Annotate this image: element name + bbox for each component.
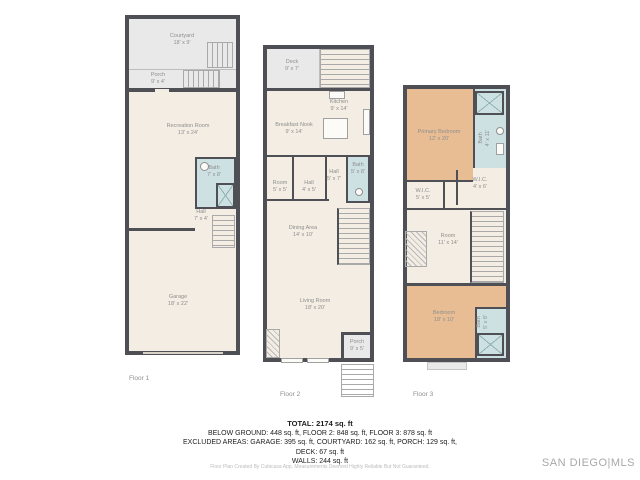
room-label-bath-f1: Bath 7' x 8' [207, 165, 221, 179]
fireplace-icon [266, 329, 280, 358]
window [281, 358, 303, 363]
excluded-area-text: EXCLUDED AREAS: GARAGE: 395 sq. ft, COUR… [0, 438, 640, 447]
shower-icon [216, 183, 235, 208]
room-label-porch-f2: Porch 9' x 5' [350, 339, 364, 353]
room-name: Deck [285, 59, 299, 66]
floor2-label: Floor 2 [280, 391, 300, 398]
floor2-exterior-walls [263, 45, 374, 362]
room-label-hall-f1: Hall 7' x 4' [194, 209, 208, 223]
floor2-exterior-stairs [341, 364, 374, 397]
room-dims: 7' x 4' [194, 216, 208, 223]
room-dims: 4' x 5' [302, 187, 316, 194]
room-dims: 5' x 7' [327, 176, 341, 183]
floor1-garage-wall [129, 228, 195, 231]
room-name: Garage [168, 294, 188, 301]
room-label-recreation-room: Recreation Room 13' x 24' [167, 123, 210, 137]
floorplan-sheet: Courtyard 18' x 9' Porch 9' x 4' Recreat… [0, 0, 640, 480]
floor2-stairs [337, 208, 370, 265]
floor1-courtyard-stairs [207, 42, 233, 68]
sink-icon [355, 188, 363, 196]
room-dims: 18' x 20' [300, 305, 331, 312]
room-name: Hall [302, 180, 316, 187]
floor3-interior-wall-2 [443, 182, 445, 210]
room-label-dining-area: Dining Area 14' x 10' [289, 225, 317, 239]
room-label-porch-f1: Porch 9' x 4' [151, 72, 165, 86]
floor2-plan: Deck 9' x 7' Kitchen 9' x 14' Breakfast … [263, 45, 378, 415]
room-name: Kitchen [330, 99, 348, 106]
room-dims: 11' x 14' [438, 240, 458, 247]
floor3-interior-wall-1 [407, 180, 473, 182]
room-label-kitchen: Kitchen 9' x 14' [330, 99, 348, 113]
room-label-room-f3: Room 11' x 14' [438, 233, 458, 247]
vanity-icon [496, 143, 504, 155]
room-name: Recreation Room [167, 123, 210, 130]
floor3-label: Floor 3 [413, 391, 433, 398]
window [307, 358, 329, 363]
room-dims: 9' x 7' [285, 66, 299, 73]
room-name: Room [273, 180, 288, 187]
room-dims: 13' x 24' [167, 130, 210, 137]
room-name: W.I.C. [416, 188, 431, 195]
room-name: Hall [194, 209, 208, 216]
room-dims: 4' x 11' [485, 130, 492, 147]
floor3-stairs [470, 211, 504, 283]
room-dims: 7' x 8' [207, 172, 221, 179]
floor1-stairs [212, 215, 235, 248]
room-label-wic-left: W.I.C. 5' x 5' [416, 188, 431, 202]
floor3-entry-stoop [427, 362, 467, 370]
room-name: W.I.C. [473, 177, 488, 184]
shower-icon [475, 91, 504, 115]
room-dims: 9' x 14' [275, 129, 313, 136]
room-label-bath-f2: Bath 5' x 8' [351, 162, 365, 176]
floor3-interior-wall-4 [407, 208, 506, 210]
room-name: Breakfast Nook [275, 122, 313, 129]
floor2-top-stairs [320, 49, 370, 88]
room-label-garage: Garage 18' x 22' [168, 294, 188, 308]
room-dims: 12' x 20' [418, 136, 461, 143]
room-name: Bath [351, 162, 365, 169]
room-label-hall-f2: Hall 4' x 5' [302, 180, 316, 194]
room-name: Bath [476, 315, 483, 329]
room-label-wic-right: W.I.C. 4' x 6' [473, 177, 488, 191]
room-dims: 9' x 4' [151, 79, 165, 86]
room-label-breakfast-nook: Breakfast Nook 9' x 14' [275, 122, 313, 136]
total-area-text: TOTAL: 2174 sq. ft [0, 419, 640, 429]
floors-area-text: BELOW GROUND: 448 sq. ft, FLOOR 2: 848 s… [0, 429, 640, 438]
room-label-primary-bedroom: Primary Bedroom 12' x 20' [418, 129, 461, 143]
sandiego-mls-watermark: SAN DIEGO|MLS [542, 457, 635, 469]
room-name: Porch [350, 339, 364, 346]
room-dims: 18' x 10' [433, 317, 455, 324]
room-dims: 5' x 5' [273, 187, 288, 194]
closet [405, 231, 427, 267]
room-name: Bath [207, 165, 221, 172]
room-name: Bedroom [433, 310, 455, 317]
floor1-label: Floor 1 [129, 375, 149, 382]
room-dims: 9' x 14' [330, 106, 348, 113]
room-dims: 18' x 9' [170, 40, 194, 47]
room-name: Primary Bedroom [418, 129, 461, 136]
room-label-room-f2: Room 5' x 5' [273, 180, 288, 194]
room-label-bath-top-f3: Bath 4' x 11' [478, 130, 492, 147]
room-dims: 18' x 22' [168, 301, 188, 308]
floor1-porch-stairs [183, 70, 220, 88]
room-dims: 14' x 10' [289, 232, 317, 239]
floor1-garage-door [143, 352, 223, 354]
room-dims: 5' x 8' [351, 169, 365, 176]
room-name: Bath [478, 130, 485, 147]
floor2-rear-wall [263, 88, 374, 91]
room-dims: 9' x 5' [350, 346, 364, 353]
floor2-interior-wall-bottom [267, 199, 329, 201]
counter [363, 109, 370, 135]
room-name: Hall [327, 169, 341, 176]
room-name: Room [438, 233, 458, 240]
room-dims: 5' x 8' [483, 315, 490, 329]
room-label-bath-bottom-f3: Bath 5' x 8' [476, 315, 490, 329]
shower-icon [477, 333, 504, 356]
kitchen-island [323, 118, 348, 139]
room-label-courtyard: Courtyard 18' x 9' [170, 33, 194, 47]
room-name: Porch [151, 72, 165, 79]
room-label-hall2-f2: Hall 5' x 7' [327, 169, 341, 183]
room-label-deck: Deck 9' x 7' [285, 59, 299, 73]
floor1-front-wall [125, 88, 240, 92]
floor1-door-opening [155, 89, 169, 92]
stove-icon [329, 91, 345, 99]
floor3-interior-wall-3 [456, 170, 458, 205]
floor1-plan: Courtyard 18' x 9' Porch 9' x 4' Recreat… [125, 15, 240, 385]
room-name: Courtyard [170, 33, 194, 40]
room-name: Living Room [300, 298, 331, 305]
room-name: Dining Area [289, 225, 317, 232]
floor2-interior-wall-v1 [292, 155, 294, 199]
deck-area-text: DECK: 67 sq. ft [0, 448, 640, 457]
room-label-living-room: Living Room 18' x 20' [300, 298, 331, 312]
floor3-plan: Primary Bedroom 12' x 20' Bath 4' x 11' … [403, 85, 515, 415]
room-label-bedroom: Bedroom 18' x 10' [433, 310, 455, 324]
toilet-icon [496, 127, 504, 135]
room-dims: 5' x 5' [416, 195, 431, 202]
room-dims: 4' x 6' [473, 184, 488, 191]
